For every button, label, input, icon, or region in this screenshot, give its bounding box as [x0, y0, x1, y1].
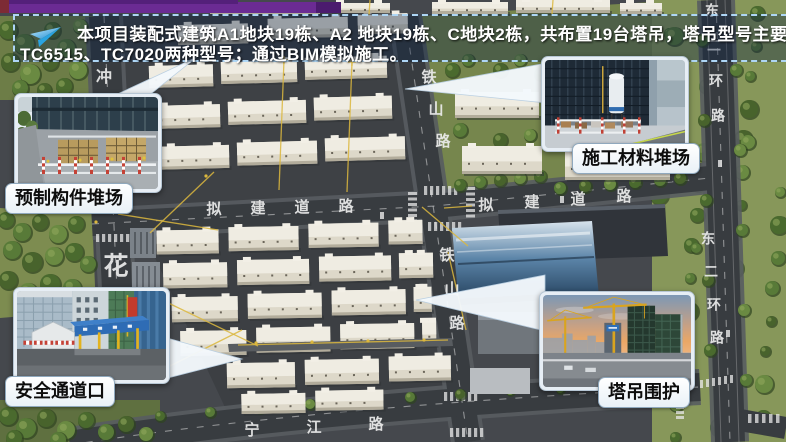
project-info-banner: 本项目装配式建筑A1地块19栋、A2 地块19栋、C地块2栋，共布置19台塔吊，…: [13, 14, 786, 62]
inset-photo-material-yard: [541, 56, 689, 152]
svg-text:冲: 冲: [96, 67, 112, 86]
svg-text:拟: 拟: [206, 200, 221, 218]
top-purple-bar-notch: [316, 2, 341, 13]
inset-photo-crane-enclosure: [539, 291, 695, 391]
svg-text:建: 建: [524, 193, 540, 211]
svg-text:铁: 铁: [439, 246, 454, 264]
svg-text:二: 二: [704, 264, 718, 280]
photo-crane-enclosure: [543, 295, 691, 387]
svg-text:江: 江: [306, 418, 321, 436]
svg-text:道: 道: [570, 190, 585, 208]
callout-label-crane-enclosure: 塔吊围护: [598, 377, 690, 408]
photo-material-yard: [545, 60, 685, 148]
svg-text:环: 环: [707, 297, 721, 313]
svg-text:环: 环: [709, 73, 723, 89]
top-left-chip: [0, 0, 9, 13]
svg-text:路: 路: [449, 314, 465, 332]
photo-prefab-yard: [18, 97, 158, 189]
banner-text-line2: TC6515、TC7020两种型号；通过BIM模拟施工。: [20, 40, 407, 65]
svg-text:道: 道: [294, 198, 309, 216]
svg-text:拟: 拟: [478, 196, 493, 214]
svg-text:山: 山: [428, 101, 443, 118]
svg-text:东: 东: [701, 231, 715, 247]
svg-text:路: 路: [616, 187, 632, 205]
svg-text:建: 建: [250, 199, 266, 217]
bim-site-overview-slide: 铁山路铁山路拟建道路拟建道路东二环路东二环路宁江路花冲 本项目装配式建筑A1地块…: [0, 0, 786, 442]
top-purple-bar-dark: [8, 0, 238, 4]
inset-photo-safety-entrance: [13, 287, 170, 384]
callout-label-material-yard: 施工材料堆场: [572, 143, 700, 174]
inset-photo-prefab-yard: [14, 93, 162, 193]
callout-label-prefab-yard: 预制构件堆场: [5, 183, 133, 214]
svg-text:山: 山: [444, 281, 459, 298]
callout-label-safety-entrance: 安全通道口: [5, 376, 115, 407]
svg-text:路: 路: [435, 132, 451, 150]
svg-text:路: 路: [338, 197, 354, 215]
photo-safety-entrance: [17, 291, 166, 380]
svg-text:花: 花: [103, 253, 128, 281]
svg-text:宁: 宁: [244, 421, 259, 439]
svg-text:路: 路: [710, 330, 725, 346]
svg-text:铁: 铁: [421, 68, 436, 86]
svg-text:路: 路: [368, 415, 384, 433]
svg-text:路: 路: [711, 108, 726, 124]
